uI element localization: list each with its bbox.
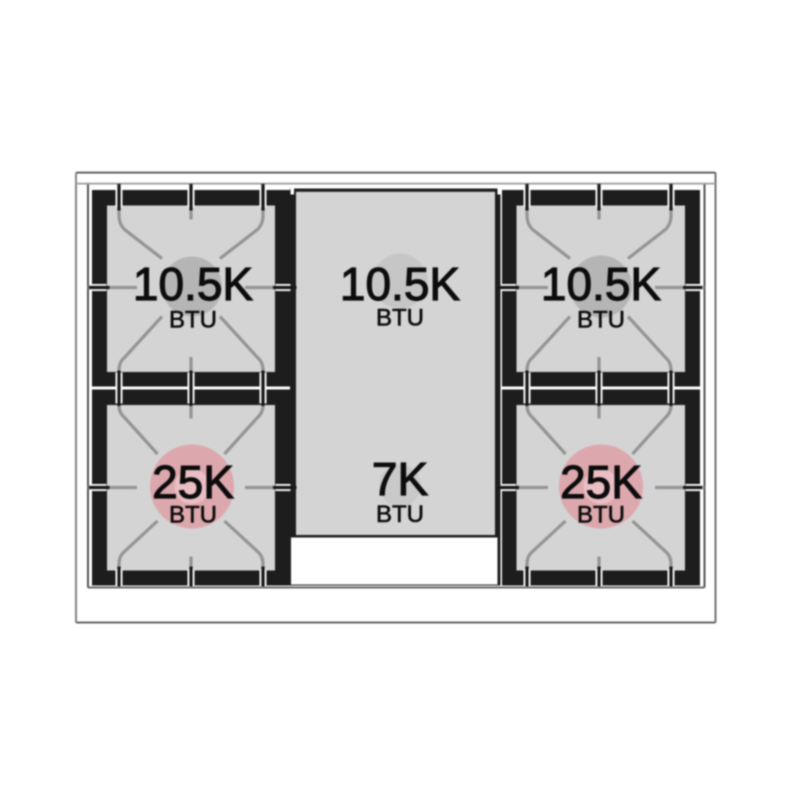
svg-text:25K: 25K bbox=[560, 456, 642, 508]
svg-text:BTU: BTU bbox=[169, 307, 217, 334]
svg-text:BTU: BTU bbox=[169, 502, 217, 529]
svg-text:10.5K: 10.5K bbox=[340, 258, 461, 310]
svg-text:25K: 25K bbox=[152, 456, 234, 508]
svg-text:BTU: BTU bbox=[577, 307, 625, 334]
svg-text:BTU: BTU bbox=[577, 502, 625, 529]
svg-text:10.5K: 10.5K bbox=[133, 258, 254, 310]
svg-text:7K: 7K bbox=[372, 453, 429, 505]
svg-text:10.5K: 10.5K bbox=[541, 258, 662, 310]
svg-text:BTU: BTU bbox=[376, 501, 424, 528]
svg-text:BTU: BTU bbox=[376, 305, 424, 332]
